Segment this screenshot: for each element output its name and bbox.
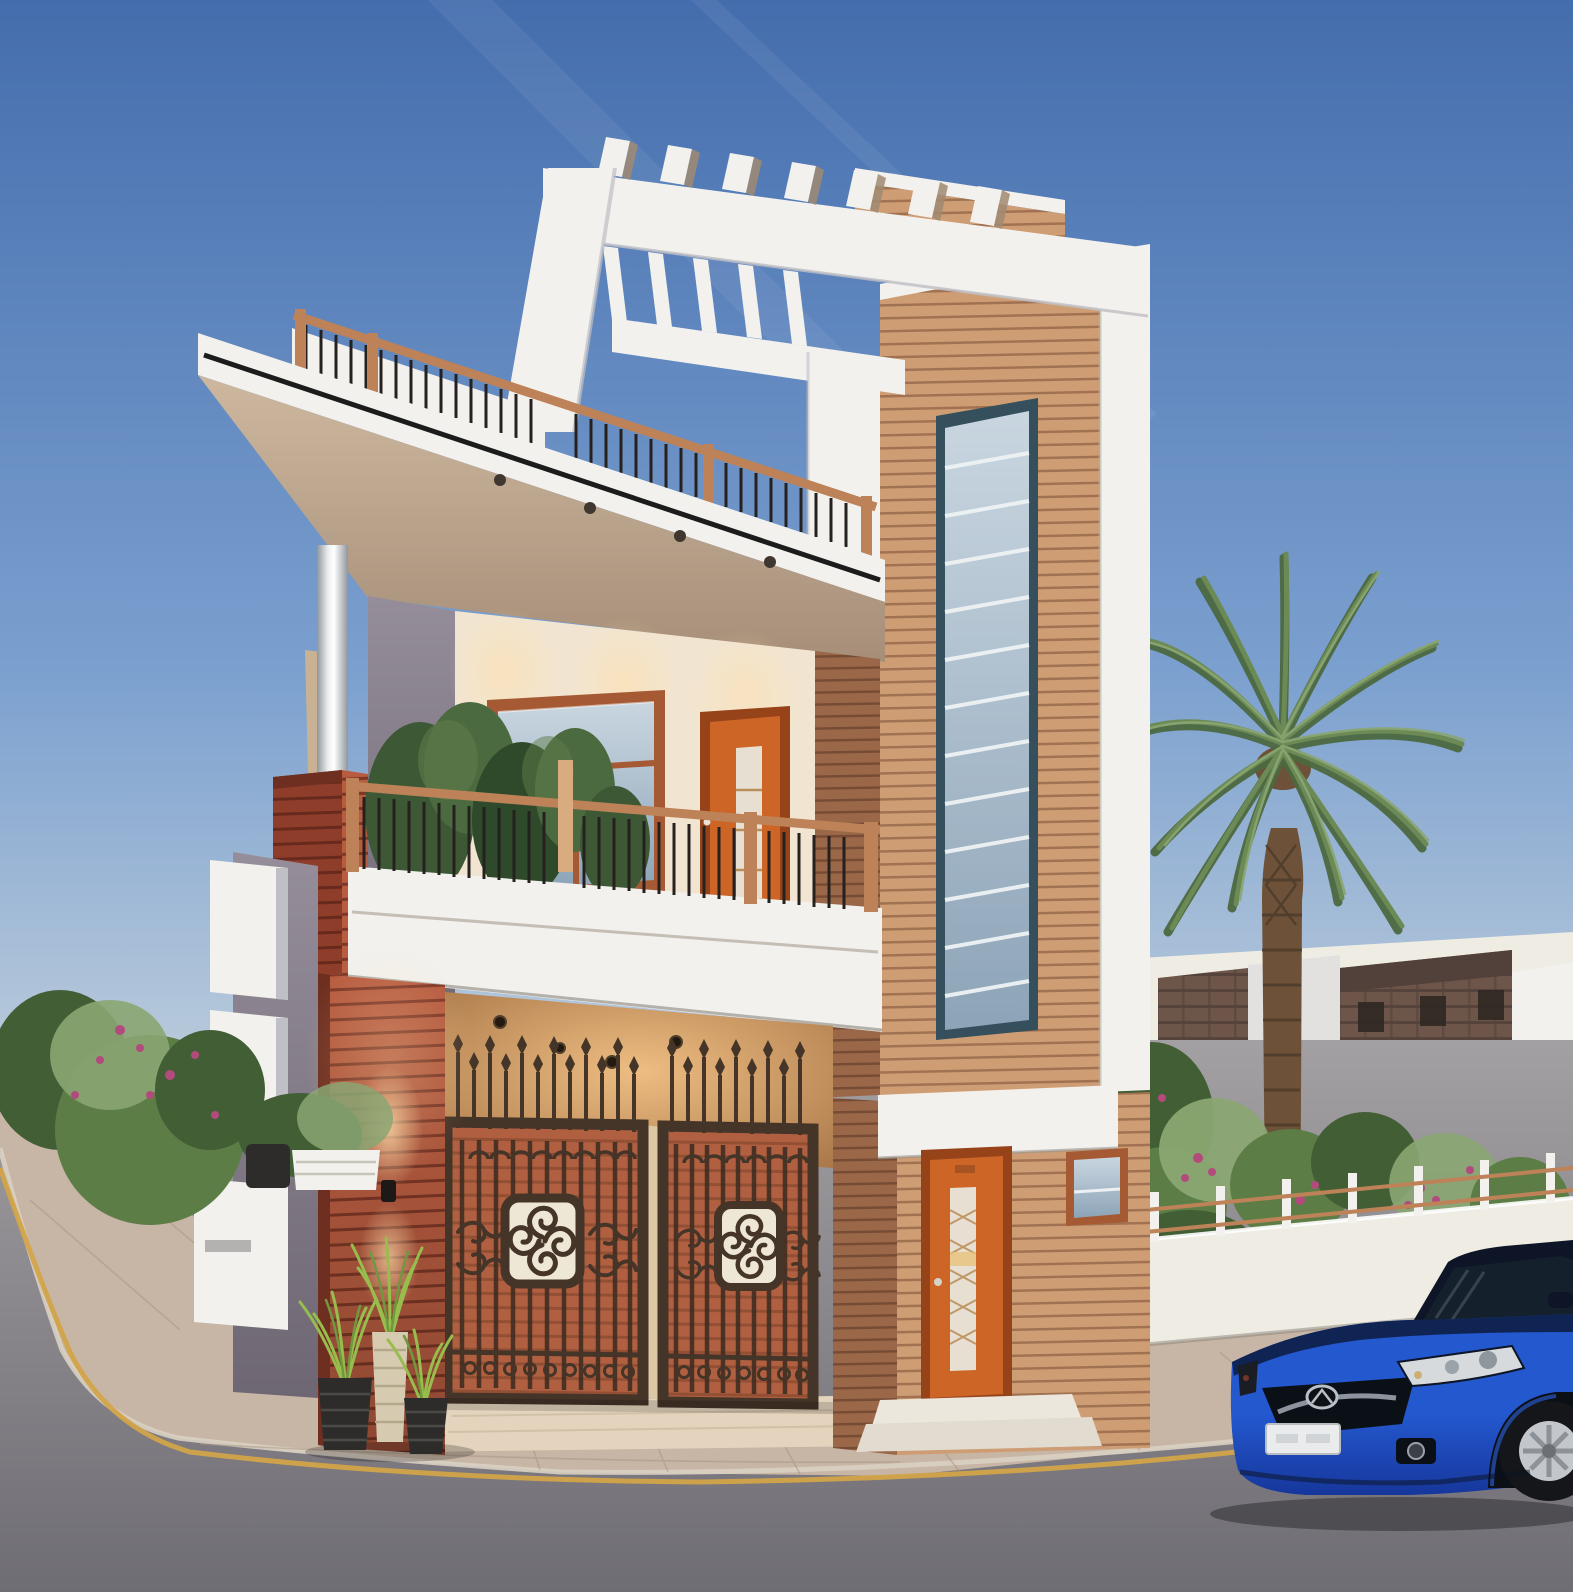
ground-floor-right bbox=[833, 1085, 1150, 1455]
car-mirror bbox=[1548, 1292, 1573, 1308]
wood-slat-tower bbox=[880, 242, 1150, 1098]
entry-door bbox=[921, 1146, 1012, 1406]
license-plate bbox=[1266, 1424, 1340, 1454]
car-shadow bbox=[1210, 1497, 1573, 1531]
car-fog-light bbox=[1396, 1438, 1436, 1464]
tower-window bbox=[936, 398, 1038, 1040]
gate-left-medallion bbox=[505, 1198, 580, 1284]
side-window-small bbox=[1066, 1148, 1128, 1226]
mazda-logo bbox=[1307, 1386, 1337, 1408]
scene bbox=[0, 0, 1573, 1592]
pot-dark-right bbox=[404, 1398, 448, 1454]
tower-white-frame-band bbox=[1100, 244, 1150, 1092]
render-canvas bbox=[0, 0, 1573, 1592]
car-headlight-left-edge bbox=[1238, 1360, 1258, 1396]
gate-right-medallion bbox=[718, 1205, 780, 1287]
street-planter bbox=[246, 1144, 380, 1190]
entry-steps bbox=[856, 1394, 1102, 1452]
pot-dark-left bbox=[318, 1378, 372, 1450]
pot-cream-tall bbox=[372, 1332, 408, 1442]
